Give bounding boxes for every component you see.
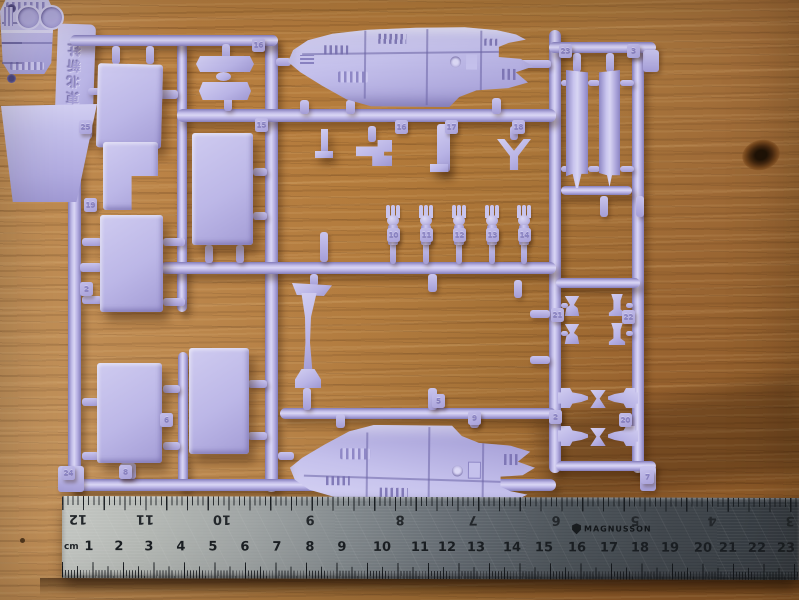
gate-stub xyxy=(320,232,328,262)
keel-groove xyxy=(2,42,22,44)
keel-strip-part xyxy=(566,70,588,188)
gate-stub xyxy=(146,46,154,64)
cm-number: 11 xyxy=(408,540,432,555)
wood-speck xyxy=(20,538,25,543)
hull-seam xyxy=(366,433,368,501)
sprue-runner xyxy=(632,48,644,473)
gate-stub xyxy=(626,331,633,336)
gate-stub xyxy=(346,100,355,114)
maker-emblem-circle xyxy=(16,5,41,30)
part-number-tag: 2 xyxy=(80,282,93,296)
ruler-brand-text: MAGNUSSON xyxy=(584,524,652,533)
cm-number: 4 xyxy=(169,539,193,554)
part-number-tag: 16 xyxy=(252,38,265,52)
hull-window-row xyxy=(326,476,350,485)
magnusson-shield-icon xyxy=(572,523,581,534)
part-number-tag: 22 xyxy=(622,310,635,324)
gate-stub xyxy=(606,53,614,72)
gate-stub xyxy=(530,310,550,318)
gate-stub xyxy=(160,90,178,99)
ruler-shadow xyxy=(40,578,799,600)
hull-seam xyxy=(482,437,484,503)
gate-stub xyxy=(205,245,213,263)
gate-stub xyxy=(278,452,294,460)
gate-stub xyxy=(163,298,185,306)
part-number-tag: 24 xyxy=(62,466,75,480)
gate-stub xyxy=(600,196,608,217)
cm-number: 2 xyxy=(107,539,131,554)
gate-stub xyxy=(492,98,501,114)
deck-beam-part xyxy=(196,56,254,72)
cm-number: 8 xyxy=(298,540,322,555)
small-oval-part xyxy=(216,72,231,81)
stern-vents xyxy=(502,69,518,80)
hull-seam xyxy=(428,427,430,503)
cm-number: 1 xyxy=(77,539,101,554)
gate-stub xyxy=(428,274,437,292)
inch-number: 7 xyxy=(461,512,485,527)
keel-hole xyxy=(7,74,16,83)
cm-number: 9 xyxy=(330,540,354,555)
keel-groove xyxy=(2,62,22,64)
gate-stub xyxy=(248,432,267,440)
gate-stub xyxy=(163,238,185,246)
flight-deck-panel xyxy=(192,133,253,245)
part-number-tag: 11 xyxy=(420,228,433,242)
cm-major-ticks xyxy=(62,562,799,580)
part-number-tag: 16 xyxy=(395,120,408,134)
inch-major-ticks xyxy=(62,496,799,512)
inch-number: 6 xyxy=(544,512,568,527)
gate-stub xyxy=(514,280,522,298)
sprue-runner xyxy=(556,278,640,288)
part-number-tag: 8 xyxy=(119,465,132,479)
part-number-tag: 6 xyxy=(160,413,173,427)
sprue-runner xyxy=(160,262,556,274)
hull-seam xyxy=(426,29,428,105)
part-number-tag: 23 xyxy=(559,44,572,58)
cm-number: 22 xyxy=(745,541,769,556)
flight-deck-panel xyxy=(96,63,163,149)
flight-deck-panel xyxy=(97,363,162,463)
part-number-tag: 13 xyxy=(486,228,499,242)
hull-window-row xyxy=(484,39,497,46)
part-number-tag: 20 xyxy=(619,413,632,427)
gate-stub xyxy=(561,331,568,336)
inch-number: 4 xyxy=(700,513,724,528)
hull-seam xyxy=(364,31,366,99)
cm-number: 13 xyxy=(464,540,488,555)
gate-stub xyxy=(588,166,600,172)
flight-deck-panel xyxy=(100,215,163,312)
recycle-emblem-circle xyxy=(39,5,64,30)
sprue-runner xyxy=(549,30,561,473)
part-number-tag: 21 xyxy=(551,308,564,322)
cm-number: 10 xyxy=(370,540,394,555)
cm-number: 19 xyxy=(658,541,682,556)
logo-tab-ribs xyxy=(4,7,13,26)
hull-round-hatch xyxy=(450,56,461,67)
inch-number: 12 xyxy=(66,511,90,526)
cm-number: 18 xyxy=(628,541,652,556)
inch-number: 8 xyxy=(388,512,412,527)
sprue-runner xyxy=(178,352,188,490)
inch-number: 9 xyxy=(298,512,322,527)
hull-window-row xyxy=(324,45,348,54)
flight-deck-panel xyxy=(189,348,249,454)
gate-stub xyxy=(573,53,581,72)
gate-stub xyxy=(530,356,550,364)
gate-stub xyxy=(620,80,634,86)
gate-stub xyxy=(80,263,102,272)
cm-number: 14 xyxy=(500,540,524,555)
pin-part-foot xyxy=(430,164,448,172)
cm-number: 12 xyxy=(435,540,459,555)
hull-round-hatch xyxy=(452,465,463,476)
cm-number: 5 xyxy=(201,539,225,554)
sprue-runner xyxy=(280,408,556,419)
bow-stripes xyxy=(300,55,314,64)
cm-number: 17 xyxy=(597,540,621,555)
part-number-tag: 18 xyxy=(512,120,525,134)
gate-stub xyxy=(236,245,244,263)
part-number-tag: 3 xyxy=(627,44,640,58)
cm-number: 7 xyxy=(265,540,289,555)
cm-number: 23 xyxy=(774,541,798,556)
part-number-tag: 14 xyxy=(518,228,531,242)
part-number-tag: 5 xyxy=(432,394,445,408)
sprue-runner xyxy=(561,186,632,195)
inch-number: 11 xyxy=(133,511,157,526)
gate-stub xyxy=(163,385,180,393)
part-number-tag: 9 xyxy=(468,411,481,425)
part-number-tag: 15 xyxy=(255,118,268,132)
photo-scene: cm 1211109876543 12345678910111213141516… xyxy=(0,0,799,600)
gate-stub xyxy=(248,380,267,388)
inch-number: 3 xyxy=(778,513,799,528)
part-number-tag: 2 xyxy=(549,410,562,424)
bridge-band xyxy=(0,30,54,33)
gate-stub xyxy=(620,166,634,172)
part-number-tag: 17 xyxy=(445,120,458,134)
gate-stub xyxy=(636,196,644,217)
gate-stub xyxy=(368,126,376,142)
hull-seam xyxy=(480,31,482,97)
hull-rect-hatch xyxy=(468,462,481,479)
cm-number: 15 xyxy=(532,540,556,555)
part-number-tag: 10 xyxy=(387,228,400,242)
sprue-runner xyxy=(70,35,278,46)
gate-stub xyxy=(82,296,102,304)
gate-stub xyxy=(253,212,267,220)
cm-number: 21 xyxy=(716,541,740,556)
cm-number: 6 xyxy=(233,539,257,554)
hull-rect-hatch xyxy=(466,54,477,69)
gate-stub xyxy=(303,388,311,410)
part-number-tag: 25 xyxy=(79,120,92,134)
gate-stub xyxy=(112,46,120,64)
keel-strip-part xyxy=(599,70,620,187)
steel-ruler: cm 1211109876543 12345678910111213141516… xyxy=(62,496,799,580)
hull-window-row xyxy=(378,34,406,44)
gate-stub xyxy=(300,100,309,114)
gate-stub xyxy=(82,238,102,246)
part-number-tag: 19 xyxy=(84,198,97,212)
cm-number: 3 xyxy=(137,539,161,554)
cm-number: 16 xyxy=(565,540,589,555)
sprue-corner-block xyxy=(643,50,659,72)
gate-stub xyxy=(626,303,633,308)
part-number-tag: 7 xyxy=(641,470,654,484)
ruler-brand: MAGNUSSON xyxy=(572,523,652,534)
gate-stub xyxy=(163,442,180,450)
gate-stub xyxy=(588,80,600,86)
stern-vents xyxy=(504,454,520,465)
antenna-base xyxy=(315,151,333,158)
cm-number: 20 xyxy=(691,541,715,556)
gate-stub xyxy=(253,168,267,176)
part-number-tag: 12 xyxy=(453,228,466,242)
gate-stub xyxy=(336,414,345,428)
inch-number: 10 xyxy=(210,511,234,526)
deck-beam-part xyxy=(199,82,251,100)
